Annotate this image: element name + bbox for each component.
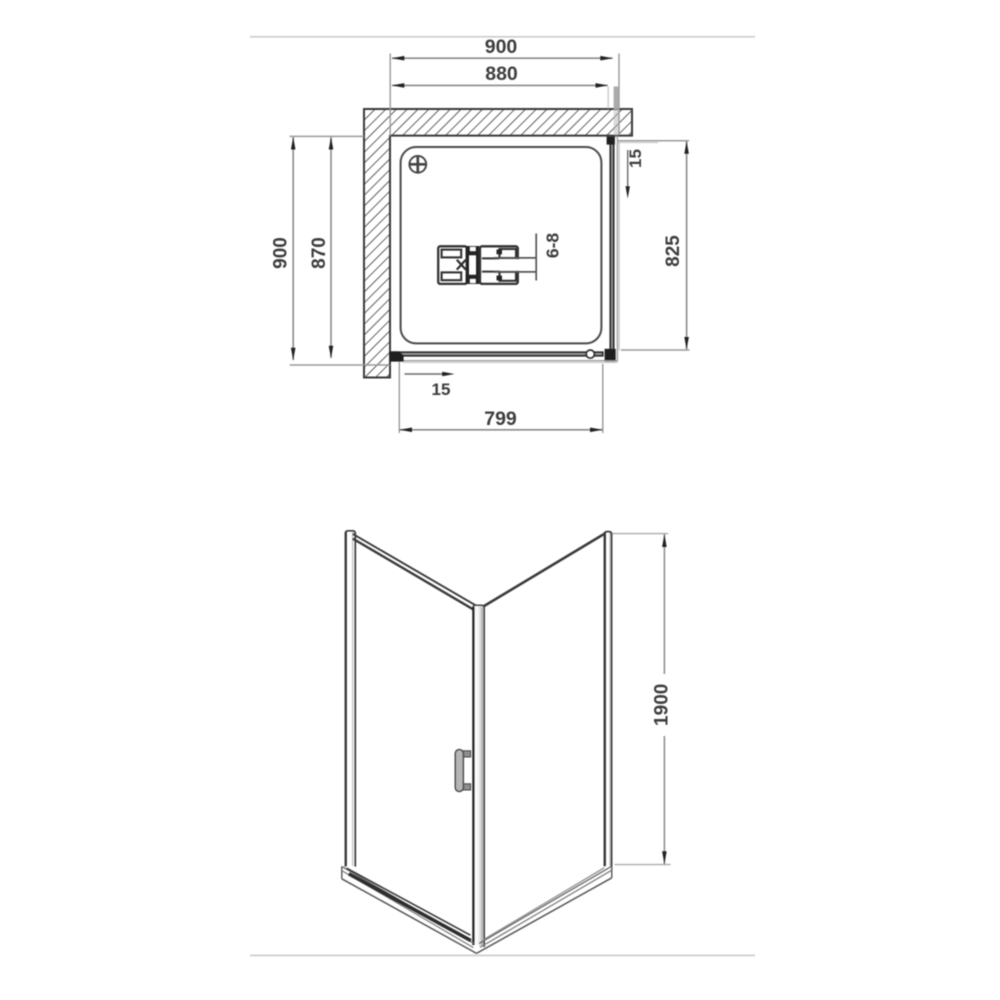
svg-text:825: 825 [663, 235, 684, 267]
svg-text:15: 15 [626, 149, 645, 168]
svg-text:1900: 1900 [652, 684, 673, 726]
svg-text:6-8: 6-8 [543, 233, 563, 259]
svg-text:799: 799 [484, 408, 517, 430]
svg-text:900: 900 [485, 36, 518, 58]
svg-text:900: 900 [271, 237, 292, 269]
svg-text:880: 880 [485, 63, 518, 85]
svg-text:870: 870 [309, 237, 330, 269]
svg-text:15: 15 [432, 380, 451, 399]
